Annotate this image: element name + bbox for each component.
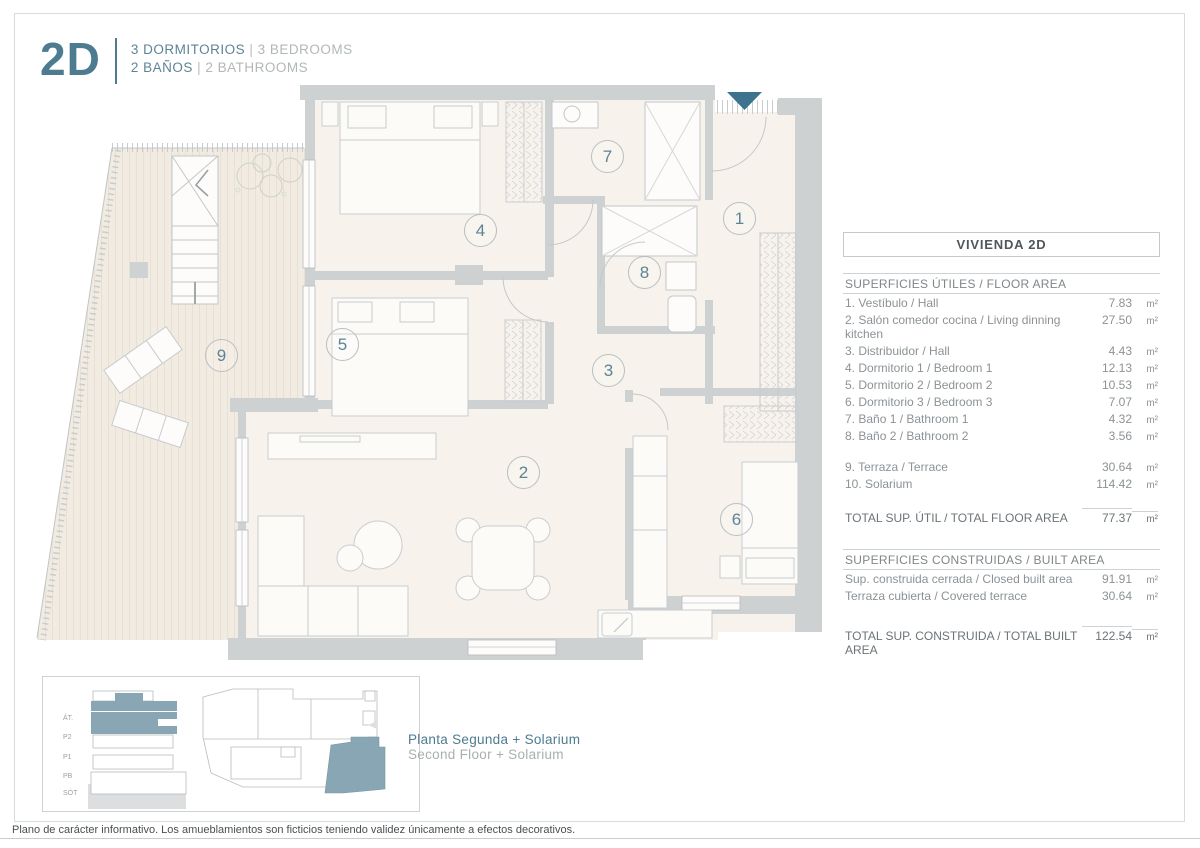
room-marker: 6 [720,503,753,536]
room-marker: 2 [507,456,540,489]
room-marker: 1 [723,202,756,235]
room-marker: 7 [591,140,624,173]
area-table: VIVIENDA 2D SUPERFICIES ÚTILES / FLOOR A… [843,232,1160,659]
room-marker: 8 [628,256,661,289]
level-labels: ÁT. P2 P1 PB SÓT [63,713,78,797]
table-row: 2. Salón comedor cocina / Living dinning… [843,311,1160,342]
built-area-header: SUPERFICIES CONSTRUIDAS / BUILT AREA [843,549,1160,570]
plan-caption: Planta Segunda + Solarium Second Floor +… [408,732,580,762]
building-section [88,691,186,809]
caption-en: Second Floor + Solarium [408,747,580,762]
bedroom1-furniture [322,102,542,214]
table-row: 7. Baño 1 / Bathroom 14.32m² [843,410,1160,427]
table-row: 9. Terraza / Terrace30.64m² [843,458,1160,475]
table-row: 1. Vestíbulo / Hall7.83m² [843,294,1160,311]
svg-text:ÁT.: ÁT. [63,713,73,722]
svg-text:SÓT: SÓT [63,788,78,797]
total-floor-area-row: TOTAL SUP. ÚTIL / TOTAL FLOOR AREA77.37m… [843,506,1160,527]
hall-wardrobe [760,233,796,411]
svg-text:PB: PB [63,773,73,780]
table-row: Sup. construida cerrada / Closed built a… [843,570,1160,587]
page: 2D 3 DORMITORIOS | 3 BEDROOMS 2 BAÑOS | … [0,0,1200,848]
footer: Plano de carácter informativo. Los amueb… [0,822,1200,839]
table-row: Terraza cubierta / Covered terrace30.64m… [843,587,1160,604]
room-marker: 5 [326,328,359,361]
table-row: 5. Dormitorio 2 / Bedroom 210.53m² [843,376,1160,393]
svg-text:P1: P1 [63,754,72,761]
caption-es: Planta Segunda + Solarium [408,732,580,747]
room-marker: 9 [205,339,238,372]
table-row: 8. Baño 2 / Bathroom 23.56m² [843,427,1160,444]
svg-text:P2: P2 [63,734,72,741]
footprint-highlight [325,737,385,793]
table-row: 4. Dormitorio 1 / Bedroom 112.13m² [843,359,1160,376]
total-built-area-row: TOTAL SUP. CONSTRUIDA / TOTAL BUILT AREA… [843,624,1160,659]
disclaimer-text: Plano de carácter informativo. Los amueb… [12,824,575,836]
key-plan: ÁT. P2 P1 PB SÓT [42,676,420,812]
table-title: VIVIENDA 2D [843,232,1160,257]
table-row: 6. Dormitorio 3 / Bedroom 37.07m² [843,393,1160,410]
floor-area-header: SUPERFICIES ÚTILES / FLOOR AREA [843,273,1160,294]
table-row: 10. Solarium114.42m² [843,475,1160,492]
room-marker: 4 [464,214,497,247]
key-plan-drawing: ÁT. P2 P1 PB SÓT [43,677,419,811]
room-marker: 3 [592,354,625,387]
table-row: 3. Distribuidor / Hall4.43m² [843,342,1160,359]
